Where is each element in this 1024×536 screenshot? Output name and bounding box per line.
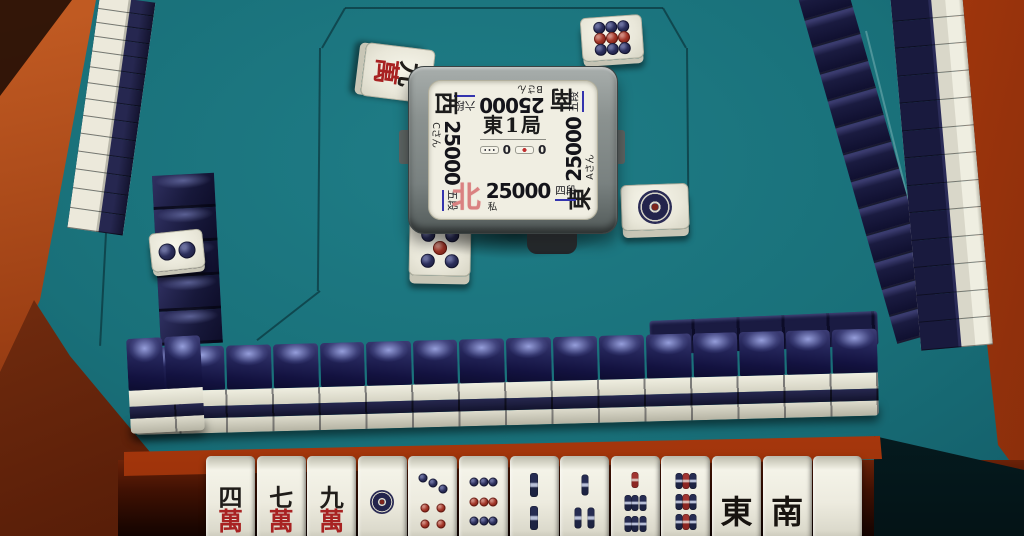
tile-suit-glyph: 萬 [218,510,243,533]
round-info: 東1局 0 0 [429,114,597,157]
wall-tile-top [273,343,319,388]
tile-honor-glyph: 南 [771,487,803,533]
bamboo-stick [530,506,538,530]
tile-face [585,17,640,59]
pin-dot-navy [479,516,488,525]
hand-tile-pin9[interactable] [459,456,508,536]
round-divider [480,139,546,140]
pin-dot-red [469,497,478,506]
wall-side-lower [130,415,205,434]
bamboo-stick [624,495,631,511]
pin-dot-red [421,504,430,513]
tile-face: 四萬 [210,468,251,536]
center-score-panel: 南 25000 Bさん 六段 西 25000 Cさん 五段 東 25000 [408,66,618,234]
tile-honor-glyph: 東 [720,487,752,533]
pin-dot-red [479,497,488,506]
pin-dot-red [436,520,445,529]
left-player-wind: 西 [434,91,458,115]
top-player-name: Bさん [517,83,543,93]
wall-tile-top [413,340,459,385]
wall-tile-top [459,338,505,383]
tile-face: 九萬 [311,468,352,536]
hand-tile-man4[interactable]: 四萬 [206,456,255,536]
pin-dot-red [421,520,430,529]
self-rank: 四段 [555,183,576,201]
table-marking-line [345,7,663,9]
wall-tile-top [226,344,272,389]
bamboo-stick [632,516,639,532]
pin-dot-navy [418,474,427,483]
pin-dot-big [370,490,394,514]
tile-face [153,232,200,269]
hand-tile-sou7[interactable] [611,456,660,536]
tile-suit-glyph: 萬 [269,510,294,533]
bamboo-stick [639,516,646,532]
bamboo-stick [632,495,639,511]
tile-face: 南 [767,468,808,536]
wall-tile-top [506,337,552,382]
bamboo-stick [682,473,689,489]
wall-tile-top [319,342,365,387]
hand-tile-sou9[interactable] [661,456,710,536]
pin-dot-navy [177,240,196,259]
wall-tile-back [152,173,216,210]
bamboo-stick [639,495,646,511]
bamboo-stick [624,516,631,532]
self-wind: 北 [452,183,481,212]
riichi-stick-icon [515,146,534,154]
bamboo-stick [675,514,682,530]
wall-tile-top [646,333,692,378]
pin-dot-big [637,189,672,224]
tile-face [463,468,504,535]
pin-dot-navy [158,242,177,261]
self-score: 25000 [486,181,551,201]
wall-tile-top [832,329,878,374]
stick-counters: 0 0 [429,143,597,157]
bamboo-stick [581,474,588,495]
pin-dot-red [436,504,445,513]
tile-face [514,468,555,535]
hand-tile-sou2[interactable] [510,456,559,536]
pin-dot-navy [469,478,478,487]
tile-suit-glyph: 萬 [319,510,344,533]
round-label: 東1局 [429,114,597,136]
bamboo-stick [690,514,697,530]
bamboo-stick [675,473,682,489]
wall-bottom-corner [126,335,205,440]
hand-tile-pin7[interactable] [408,456,457,536]
tile-face: 東 [716,468,757,536]
wall-tile-back [157,275,221,312]
pin-dot-navy [439,484,448,493]
right-player-name: Aさん [586,154,596,180]
tile-face [362,468,403,535]
pin-dot-navy [606,43,619,56]
pin-dot-red [489,497,498,506]
score-screen: 南 25000 Bさん 六段 西 25000 Cさん 五段 東 25000 [428,80,598,220]
hand-tile-south[interactable]: 南 [763,456,812,536]
pin-dot-navy [469,516,478,525]
tile-face [665,468,706,535]
top-player-score: 25000 [480,95,545,115]
wall-tile-top [126,337,165,391]
hand-tile-east[interactable]: 東 [712,456,761,536]
honba-stick-icon [480,146,499,154]
tile-face [412,468,453,535]
mahjong-table-scene: 南 25000 Bさん 六段 西 25000 Cさん 五段 東 25000 [0,0,1024,536]
bamboo-stick [682,494,689,510]
pin-dot-navy [428,479,437,488]
hand-tile-man7[interactable]: 七萬 [257,456,306,536]
tile-face [817,468,858,535]
wall-tile-top [786,330,832,375]
dora-indicator-tile [148,228,206,272]
wall-tile-top [552,336,598,381]
tile-face [564,468,605,535]
hand-tile-man9[interactable]: 九萬 [307,456,356,536]
honba-count: 0 [503,143,511,157]
bamboo-stick [690,473,697,489]
wall-tile-top [739,331,785,376]
pin-dot-navy [489,478,498,487]
discard-tile-pin9 [580,14,645,62]
pin-dot-navy [594,43,607,56]
hand-tile-sou3[interactable] [560,456,609,536]
tile-suit-glyph: 萬 [371,57,398,86]
tile-face: 七萬 [261,468,302,536]
right-player-rank: 五段 [566,91,584,112]
wall-tile-top [692,332,738,377]
bamboo-stick [530,473,538,497]
bamboo-stick [682,514,689,530]
self-name: 私 [488,203,498,213]
bamboo-stick [632,472,639,488]
wall-tile-top [366,341,412,386]
wall-tile-top [164,335,203,389]
discard-tile-pin1 [620,183,690,231]
hand-tile-pin1[interactable] [358,456,407,536]
bamboo-stick [690,494,697,510]
bamboo-stick [588,507,595,528]
tile-face [625,186,684,228]
pin-dot-navy [619,42,632,55]
player-block-self: 北 25000 私 四段 [444,177,584,217]
wall-tile-tops [126,335,203,391]
bamboo-stick [575,507,582,528]
hand-tile-haku[interactable] [813,456,862,536]
tile-face [615,468,656,535]
riichi-count: 0 [538,143,546,157]
wall-tile-back [919,316,993,350]
wall-tile-top [599,335,645,380]
wall-bottom [133,329,879,440]
pin-dot-navy [479,478,488,487]
pin-dot-navy [489,516,498,525]
bamboo-stick [675,494,682,510]
